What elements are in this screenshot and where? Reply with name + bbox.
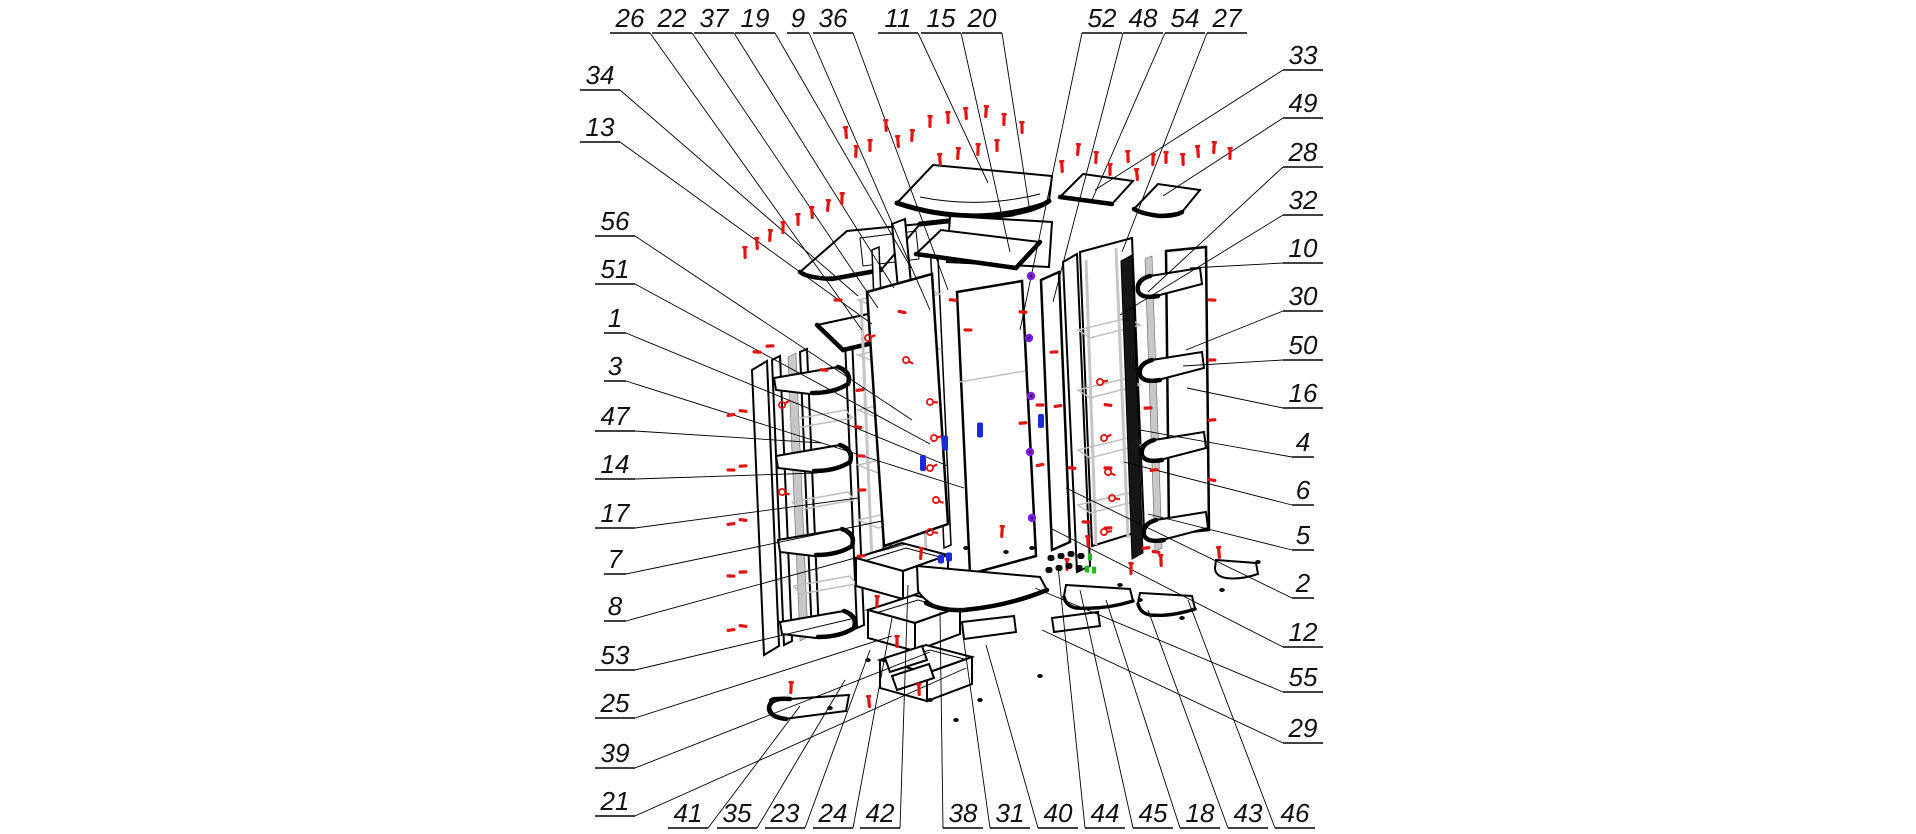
bolt-icon	[726, 628, 735, 632]
small-part-dot	[963, 546, 969, 550]
screw-icon	[963, 107, 969, 120]
bolt-icon	[738, 518, 747, 522]
part-number-15: 15	[927, 3, 956, 33]
callout-46: 46	[1275, 798, 1315, 828]
part-number-50: 50	[1289, 330, 1318, 360]
callout-56: 56	[595, 206, 635, 236]
diagram-page: 2622371993611152052485427341356511347141…	[0, 0, 1916, 834]
part-number-2: 2	[1295, 568, 1311, 598]
screw-icon	[983, 105, 989, 118]
screw-icon	[866, 695, 873, 708]
screw-icon	[788, 681, 794, 694]
screw-icon	[1134, 168, 1141, 181]
screw-icon	[867, 139, 873, 152]
callout-34: 34	[580, 60, 620, 90]
bolt-icon	[1207, 358, 1216, 361]
leader-line-49	[1163, 118, 1283, 196]
callout-54: 54	[1165, 3, 1205, 33]
callout-2: 2	[1292, 568, 1314, 598]
leader-line-21	[635, 668, 966, 816]
hardware-dot-icon	[1078, 553, 1085, 559]
callout-7: 7	[604, 544, 626, 574]
bolt-icon	[726, 574, 735, 578]
part-number-4: 4	[1296, 427, 1310, 457]
screw-icon	[780, 221, 786, 234]
fitting-icon	[1092, 567, 1096, 574]
leader-line-46	[1188, 600, 1275, 828]
callout-20: 20	[962, 3, 1002, 33]
bolt-icon	[1207, 298, 1216, 302]
small-part-dot	[1037, 674, 1043, 678]
part-number-16: 16	[1289, 378, 1318, 408]
callout-27: 27	[1207, 3, 1247, 33]
callout-45: 45	[1133, 798, 1173, 828]
edge-band	[1145, 256, 1162, 551]
callout-36: 36	[813, 3, 853, 33]
part-number-21: 21	[600, 786, 630, 816]
left-corner-shelf-unit	[752, 337, 864, 655]
callout-1: 1	[604, 303, 626, 333]
leader-line-33	[1095, 70, 1283, 190]
bolt-icon	[765, 344, 774, 348]
small-part-dot	[865, 658, 871, 662]
screw-icon	[1001, 113, 1007, 126]
fitting-icon	[1085, 566, 1089, 573]
cam-lock-icon	[1026, 448, 1034, 456]
bolt-icon	[1081, 520, 1090, 524]
wardrobe-exploded-drawing	[752, 165, 1258, 719]
small-part-dot	[1117, 583, 1123, 587]
callout-5: 5	[1292, 520, 1314, 550]
callout-labels: 2622371993611152052485427341356511347141…	[580, 3, 1323, 828]
part-number-34: 34	[586, 60, 615, 90]
part-number-40: 40	[1044, 798, 1073, 828]
part-number-7: 7	[608, 544, 624, 574]
small-part-dot	[1255, 560, 1261, 564]
callout-29: 29	[1283, 713, 1323, 743]
leader-line-19	[775, 33, 911, 268]
bolt-icon	[963, 328, 972, 331]
screw-icon	[839, 192, 845, 205]
leader-line-39	[635, 652, 930, 768]
main-door	[957, 281, 1036, 574]
fitting-icon	[1088, 554, 1092, 561]
callout-41: 41	[668, 798, 708, 828]
small-part-dot	[1219, 588, 1225, 592]
screw-icon	[742, 246, 748, 259]
leader-line-17	[635, 498, 858, 528]
screw-icon	[1180, 153, 1186, 166]
part-number-41: 41	[674, 798, 703, 828]
callout-40: 40	[1038, 798, 1078, 828]
callout-47: 47	[595, 401, 635, 431]
bolt-icon	[1035, 463, 1044, 468]
part-number-56: 56	[601, 206, 630, 236]
screw-icon	[1107, 163, 1113, 176]
bolt-icon	[1036, 403, 1045, 406]
screw-icon	[809, 206, 815, 219]
callout-43: 43	[1228, 798, 1268, 828]
hardware-dot-icon	[1056, 565, 1063, 571]
hardware-dot-icon	[1066, 563, 1073, 569]
callout-21: 21	[595, 786, 635, 816]
callout-30: 30	[1283, 281, 1323, 311]
small-part-dot	[1029, 546, 1035, 550]
screw-icon	[1150, 153, 1156, 166]
screw-icon	[945, 111, 951, 124]
screw-icon	[937, 153, 943, 166]
screw-icon	[1195, 145, 1202, 158]
callout-4: 4	[1292, 427, 1314, 457]
leader-line-54	[1092, 33, 1165, 200]
part-number-43: 43	[1234, 798, 1263, 828]
part-number-22: 22	[657, 3, 687, 33]
part-number-14: 14	[601, 449, 630, 479]
screw-icon	[795, 213, 801, 226]
hardware-dot-icon	[1058, 553, 1065, 559]
curved-base-panel	[917, 566, 1047, 610]
part-number-51: 51	[601, 254, 630, 284]
screw-icon	[994, 139, 1000, 152]
part-number-10: 10	[1289, 233, 1318, 263]
screw-icon	[1125, 150, 1131, 163]
callout-18: 18	[1180, 798, 1220, 828]
handle-icon	[920, 455, 926, 471]
cam-lock-icon	[1027, 392, 1035, 400]
part-number-23: 23	[770, 798, 800, 828]
part-number-5: 5	[1296, 520, 1311, 550]
screw-icon	[895, 135, 902, 148]
screw-icon	[883, 119, 889, 132]
callout-32: 32	[1283, 185, 1323, 215]
callout-35: 35	[717, 798, 757, 828]
part-number-31: 31	[996, 798, 1025, 828]
callout-49: 49	[1283, 88, 1323, 118]
center-doors	[957, 272, 1070, 574]
part-number-9: 9	[791, 3, 805, 33]
callout-3: 3	[604, 351, 626, 381]
callout-23: 23	[765, 798, 805, 828]
part-number-38: 38	[949, 798, 978, 828]
bolt-icon	[738, 624, 747, 628]
small-part-dot	[953, 718, 959, 722]
part-number-52: 52	[1088, 3, 1117, 33]
callout-14: 14	[595, 449, 635, 479]
part-number-42: 42	[866, 798, 895, 828]
part-number-19: 19	[741, 3, 770, 33]
part-number-47: 47	[601, 401, 631, 431]
handle-icon	[1038, 414, 1044, 428]
callout-13: 13	[580, 112, 620, 142]
part-number-32: 32	[1289, 185, 1318, 215]
leader-line-22	[692, 33, 878, 308]
part-number-46: 46	[1281, 798, 1310, 828]
bolt-icon	[738, 464, 747, 468]
callout-16: 16	[1283, 378, 1323, 408]
part-number-6: 6	[1296, 475, 1311, 505]
callout-19: 19	[735, 3, 775, 33]
small-part-dot	[1003, 550, 1009, 554]
bottom-shelf	[1215, 560, 1258, 579]
part-number-18: 18	[1186, 798, 1215, 828]
screw-icon	[1216, 546, 1223, 559]
callout-48: 48	[1123, 3, 1163, 33]
part-number-1: 1	[608, 303, 622, 333]
cam-lock-icon	[1025, 334, 1033, 342]
leader-line-24	[853, 618, 892, 828]
bolt-icon	[857, 488, 866, 491]
part-number-25: 25	[600, 688, 630, 718]
screw-icon	[843, 126, 850, 139]
bolt-icon	[834, 298, 843, 301]
callout-17: 17	[595, 498, 635, 528]
callout-10: 10	[1283, 233, 1323, 263]
part-number-30: 30	[1289, 281, 1318, 311]
callout-8: 8	[604, 591, 626, 621]
part-number-33: 33	[1289, 40, 1318, 70]
hardware-dot-icon	[1068, 551, 1075, 557]
part-number-29: 29	[1288, 713, 1318, 743]
bolt-icon	[1143, 406, 1152, 410]
screw-icon	[975, 143, 981, 156]
small-part-dot	[1179, 616, 1185, 620]
callout-26: 26	[610, 3, 650, 33]
part-number-44: 44	[1091, 798, 1120, 828]
bolt-icon	[726, 522, 735, 527]
bolt-icon	[1151, 550, 1160, 555]
callout-52: 52	[1082, 3, 1122, 33]
callout-12: 12	[1283, 617, 1323, 647]
part-number-11: 11	[885, 3, 912, 33]
plinth-strip	[962, 616, 1016, 639]
screw-icon	[1075, 143, 1082, 156]
screw-icon	[1163, 151, 1169, 164]
part-number-28: 28	[1288, 137, 1318, 167]
callout-15: 15	[921, 3, 961, 33]
leader-line-34	[620, 90, 858, 296]
part-number-12: 12	[1289, 617, 1318, 647]
callout-39: 39	[595, 738, 635, 768]
left-door	[867, 274, 948, 546]
hardware-dot-icon	[1046, 567, 1053, 573]
handle-icon	[977, 423, 983, 438]
exploded-view-svg: 2622371993611152052485427341356511347141…	[0, 0, 1916, 834]
callout-28: 28	[1283, 137, 1323, 167]
handle-icon	[946, 553, 952, 562]
screw-icon	[1093, 151, 1099, 164]
screw-icon	[754, 237, 760, 250]
part-number-27: 27	[1212, 3, 1243, 33]
callout-42: 42	[860, 798, 900, 828]
part-number-48: 48	[1129, 3, 1158, 33]
callout-53: 53	[595, 640, 635, 670]
callout-55: 55	[1283, 662, 1323, 692]
handle-icon	[938, 555, 944, 564]
part-number-45: 45	[1139, 798, 1168, 828]
bolt-icon	[855, 388, 864, 392]
part-number-39: 39	[601, 738, 630, 768]
bolt-icon	[738, 570, 747, 574]
cam-lock-icon	[1027, 272, 1035, 280]
handle-icon	[942, 436, 948, 451]
leader-line-18	[1106, 600, 1180, 828]
part-number-37: 37	[700, 3, 730, 33]
leader-line-43	[1148, 610, 1228, 828]
callout-24: 24	[813, 798, 853, 828]
part-number-17: 17	[601, 498, 631, 528]
callout-51: 51	[595, 254, 635, 284]
small-part-dot	[1137, 598, 1143, 602]
cam-screw-icon	[927, 529, 939, 536]
leader-line-38	[940, 612, 943, 828]
leader-line-27	[1122, 33, 1207, 252]
leader-line-29	[1042, 630, 1283, 743]
callout-25: 25	[595, 688, 635, 718]
part-number-54: 54	[1171, 3, 1200, 33]
screw-icon	[955, 147, 962, 160]
leader-line-14	[635, 473, 817, 479]
bolt-icon	[738, 409, 747, 413]
screw-icon	[1158, 554, 1164, 567]
part-number-26: 26	[615, 3, 645, 33]
callout-31: 31	[990, 798, 1030, 828]
callout-50: 50	[1283, 330, 1323, 360]
screw-icon	[767, 229, 773, 242]
part-number-55: 55	[1289, 662, 1318, 692]
part-number-13: 13	[586, 112, 615, 142]
leader-line-26	[650, 33, 862, 330]
callout-37: 37	[694, 3, 734, 33]
callout-6: 6	[1292, 475, 1314, 505]
part-number-20: 20	[967, 3, 997, 33]
bolt-icon	[752, 350, 761, 354]
part-number-24: 24	[818, 798, 848, 828]
screw-icon	[825, 199, 832, 212]
part-number-49: 49	[1289, 88, 1318, 118]
bolt-icon	[856, 454, 865, 458]
callout-9: 9	[787, 3, 809, 33]
top-panels	[897, 165, 1200, 268]
screw-icon	[1211, 141, 1217, 154]
screw-icon	[1059, 160, 1065, 173]
bolt-icon	[726, 468, 735, 471]
screw-icon	[853, 145, 859, 158]
part-number-35: 35	[723, 798, 752, 828]
part-number-53: 53	[601, 640, 630, 670]
small-part-dot	[927, 698, 933, 702]
small-part-dot	[977, 698, 983, 702]
cam-lock-icon	[1028, 514, 1036, 522]
hardware-dot-icon	[1076, 565, 1083, 571]
callout-22: 22	[652, 3, 692, 33]
small-part-dot	[827, 706, 833, 710]
hardware-dot-icon	[1048, 555, 1055, 561]
screw-icon	[1019, 121, 1025, 134]
screw-icon	[927, 115, 933, 128]
curved-top-panel	[1134, 184, 1200, 215]
screw-icon	[909, 129, 915, 142]
part-number-8: 8	[608, 591, 623, 621]
callout-11: 11	[878, 3, 918, 33]
callout-33: 33	[1283, 40, 1323, 70]
part-number-3: 3	[608, 351, 623, 381]
plinth-strip	[1052, 612, 1100, 632]
callout-38: 38	[943, 798, 983, 828]
part-number-36: 36	[819, 3, 848, 33]
callout-44: 44	[1085, 798, 1125, 828]
bolt-icon	[1049, 350, 1058, 354]
